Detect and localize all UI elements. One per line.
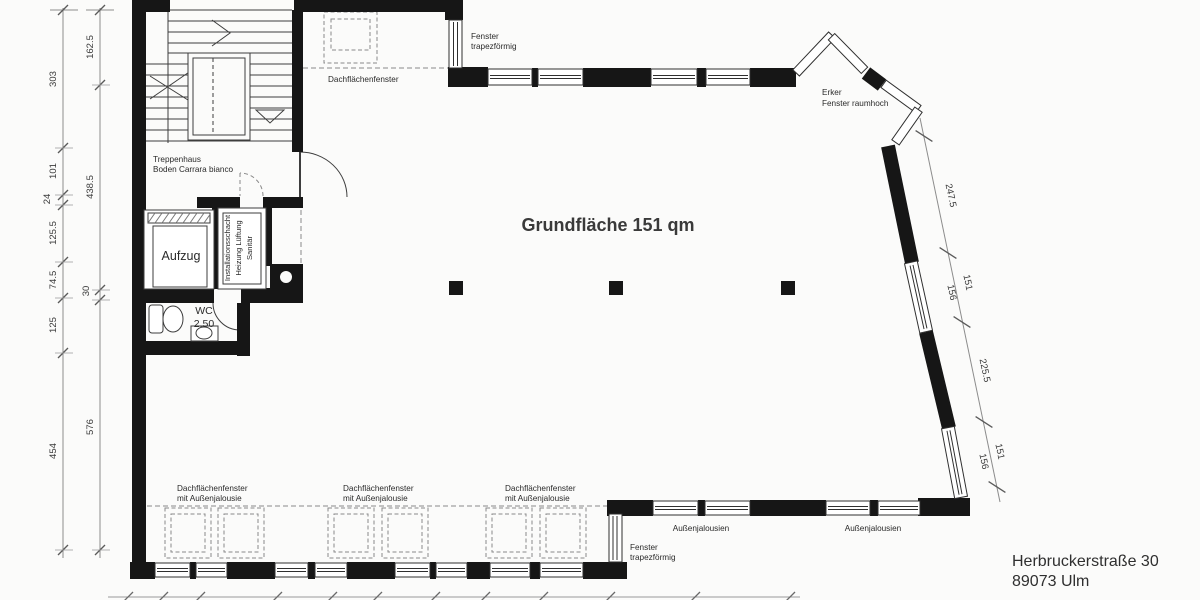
shaft-label-line1: Installationsschacht bbox=[223, 214, 232, 281]
dim-right-2: 156 bbox=[944, 284, 958, 302]
columns bbox=[449, 281, 795, 295]
shutters-label-2: Außenjalousien bbox=[845, 524, 902, 533]
stair-direction-arrow-down bbox=[256, 110, 284, 123]
door-dashed-swing bbox=[240, 173, 263, 196]
bay-window-strips bbox=[793, 32, 922, 145]
roof-window-shutter-1-line2: mit Außenjalousie bbox=[177, 494, 242, 503]
dim-left-outer-4: 74.5 bbox=[48, 271, 59, 290]
dim-left-inner-0: 162.5 bbox=[85, 35, 96, 59]
dim-left-outer-0: 303 bbox=[48, 71, 59, 87]
roof-window-shutter-1-line1: Dachflächenfenster bbox=[177, 484, 248, 493]
dim-left-outer-6: 454 bbox=[48, 443, 59, 459]
window-trapezoid-bottom-line1: Fenster bbox=[630, 543, 658, 552]
dim-right-4: 151 bbox=[992, 443, 1006, 461]
address-line2: 89073 Ulm bbox=[1012, 573, 1089, 590]
floor-plan-page: 303 101 24 125.5 74.5 125 454 162.5 438.… bbox=[0, 0, 1200, 600]
door-staircase bbox=[300, 152, 347, 197]
dim-left-outer-1: 101 bbox=[48, 163, 59, 179]
staircase bbox=[146, 2, 292, 143]
dim-right-3: 225.5 bbox=[977, 358, 993, 384]
dim-left-inner-2: 30 bbox=[81, 286, 92, 297]
floor-plan-drawing: 303 101 24 125.5 74.5 125 454 162.5 438.… bbox=[0, 0, 1200, 600]
dim-right-5: 156 bbox=[976, 453, 990, 471]
window-trapezoid-bottom-line2: trapezförmig bbox=[630, 553, 676, 562]
staircase-label-line1: Treppenhaus bbox=[153, 155, 201, 164]
wc-label: WC bbox=[195, 305, 213, 317]
roof-window-shutter-3-line2: mit Außenjalousie bbox=[505, 494, 570, 503]
toilet-cistern bbox=[149, 305, 163, 333]
dim-left-inner-3: 576 bbox=[85, 419, 96, 435]
shutters-label-1: Außenjalousien bbox=[673, 524, 730, 533]
dimension-chain-bottom bbox=[108, 592, 800, 600]
roof-window-shutter-3-line1: Dachflächenfenster bbox=[505, 484, 576, 493]
elevator-label: Aufzug bbox=[162, 249, 201, 263]
dim-left-outer-2: 24 bbox=[42, 194, 53, 205]
address-line1: Herbruckerstraße 30 bbox=[1012, 553, 1159, 570]
bay-label-line2: Fenster raumhoch bbox=[822, 99, 889, 108]
dimension-chain-right: 247.5 151 156 225.5 151 156 bbox=[916, 118, 1007, 502]
stair-direction-arrow-up bbox=[212, 20, 230, 46]
roof-window-shutter-2-line1: Dachflächenfenster bbox=[343, 484, 414, 493]
toilet-bowl bbox=[163, 306, 183, 332]
dim-right-1: 151 bbox=[960, 274, 974, 292]
bay-label-line1: Erker bbox=[822, 88, 842, 97]
roof-window-top bbox=[324, 12, 377, 63]
dim-left-outer-5: 125 bbox=[48, 317, 59, 333]
wc-height-label: 2.50 bbox=[194, 318, 215, 330]
dim-right-0: 247.5 bbox=[943, 183, 959, 209]
staircase-label-line2: Boden Carrara bianco bbox=[153, 165, 234, 174]
window-trapezoid-top-line2: trapezförmig bbox=[471, 42, 517, 51]
dim-left-inner-1: 438.5 bbox=[85, 175, 96, 199]
roof-window-shutter-2-line2: mit Außenjalousie bbox=[343, 494, 408, 503]
dimension-labels-left: 303 101 24 125.5 74.5 125 454 162.5 438.… bbox=[42, 35, 96, 459]
shaft-pipe-symbol bbox=[280, 271, 292, 283]
main-area-label: Grundfläche 151 qm bbox=[521, 215, 694, 235]
roof-window-top-label: Dachflächenfenster bbox=[328, 75, 399, 84]
window-trapezoid-top-line1: Fenster bbox=[471, 32, 499, 41]
shaft-label-line3: Sanitär bbox=[245, 235, 254, 260]
dim-left-outer-3: 125.5 bbox=[48, 221, 59, 245]
shaft-label-line2: Heizung Lüftung bbox=[234, 220, 243, 275]
roof-windows-bottom bbox=[165, 508, 586, 558]
dimension-chain-left bbox=[50, 5, 114, 558]
